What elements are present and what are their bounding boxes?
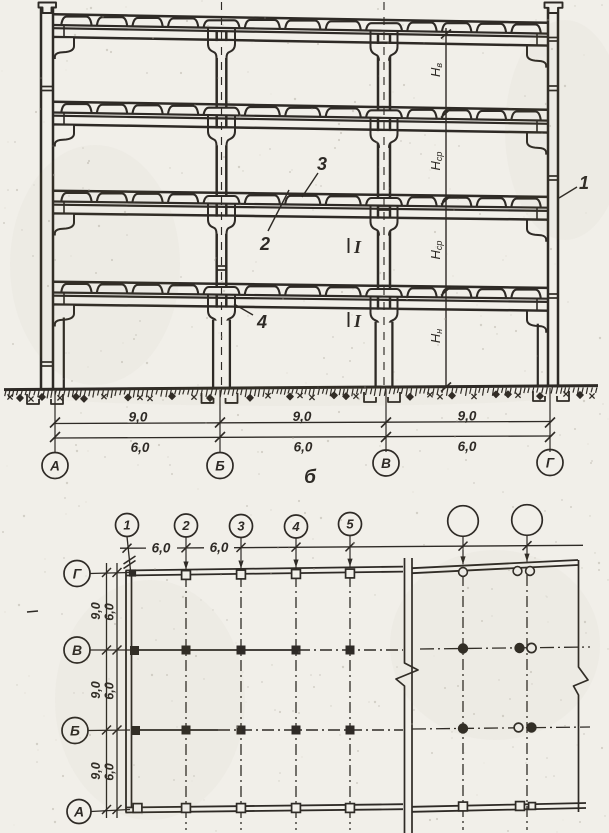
svg-text:9,0: 9,0 <box>129 410 148 425</box>
svg-text:Г: Г <box>546 456 555 471</box>
svg-text:Г: Г <box>73 566 83 582</box>
svg-text:6,0: 6,0 <box>131 440 150 455</box>
svg-text:3: 3 <box>237 519 245 534</box>
svg-text:В: В <box>381 456 391 471</box>
svg-text:5: 5 <box>346 517 354 532</box>
svg-text:б: б <box>304 467 317 488</box>
svg-text:6,0: 6,0 <box>210 540 229 555</box>
svg-text:6,0: 6,0 <box>294 440 313 455</box>
svg-text:4: 4 <box>256 312 267 332</box>
svg-text:I: I <box>353 311 362 331</box>
svg-text:6,0: 6,0 <box>152 541 171 556</box>
svg-text:2: 2 <box>181 518 190 533</box>
svg-text:Б: Б <box>215 459 225 474</box>
svg-text:4: 4 <box>291 519 300 534</box>
svg-text:3: 3 <box>317 154 327 174</box>
svg-text:9,0: 9,0 <box>293 409 312 424</box>
svg-text:1: 1 <box>123 518 130 533</box>
svg-text:6,0: 6,0 <box>458 439 477 454</box>
svg-text:9,0: 9,0 <box>458 409 477 424</box>
svg-text:А: А <box>49 459 60 474</box>
svg-text:I: I <box>353 237 362 257</box>
svg-text:2: 2 <box>259 234 270 254</box>
svg-text:А: А <box>73 804 84 820</box>
